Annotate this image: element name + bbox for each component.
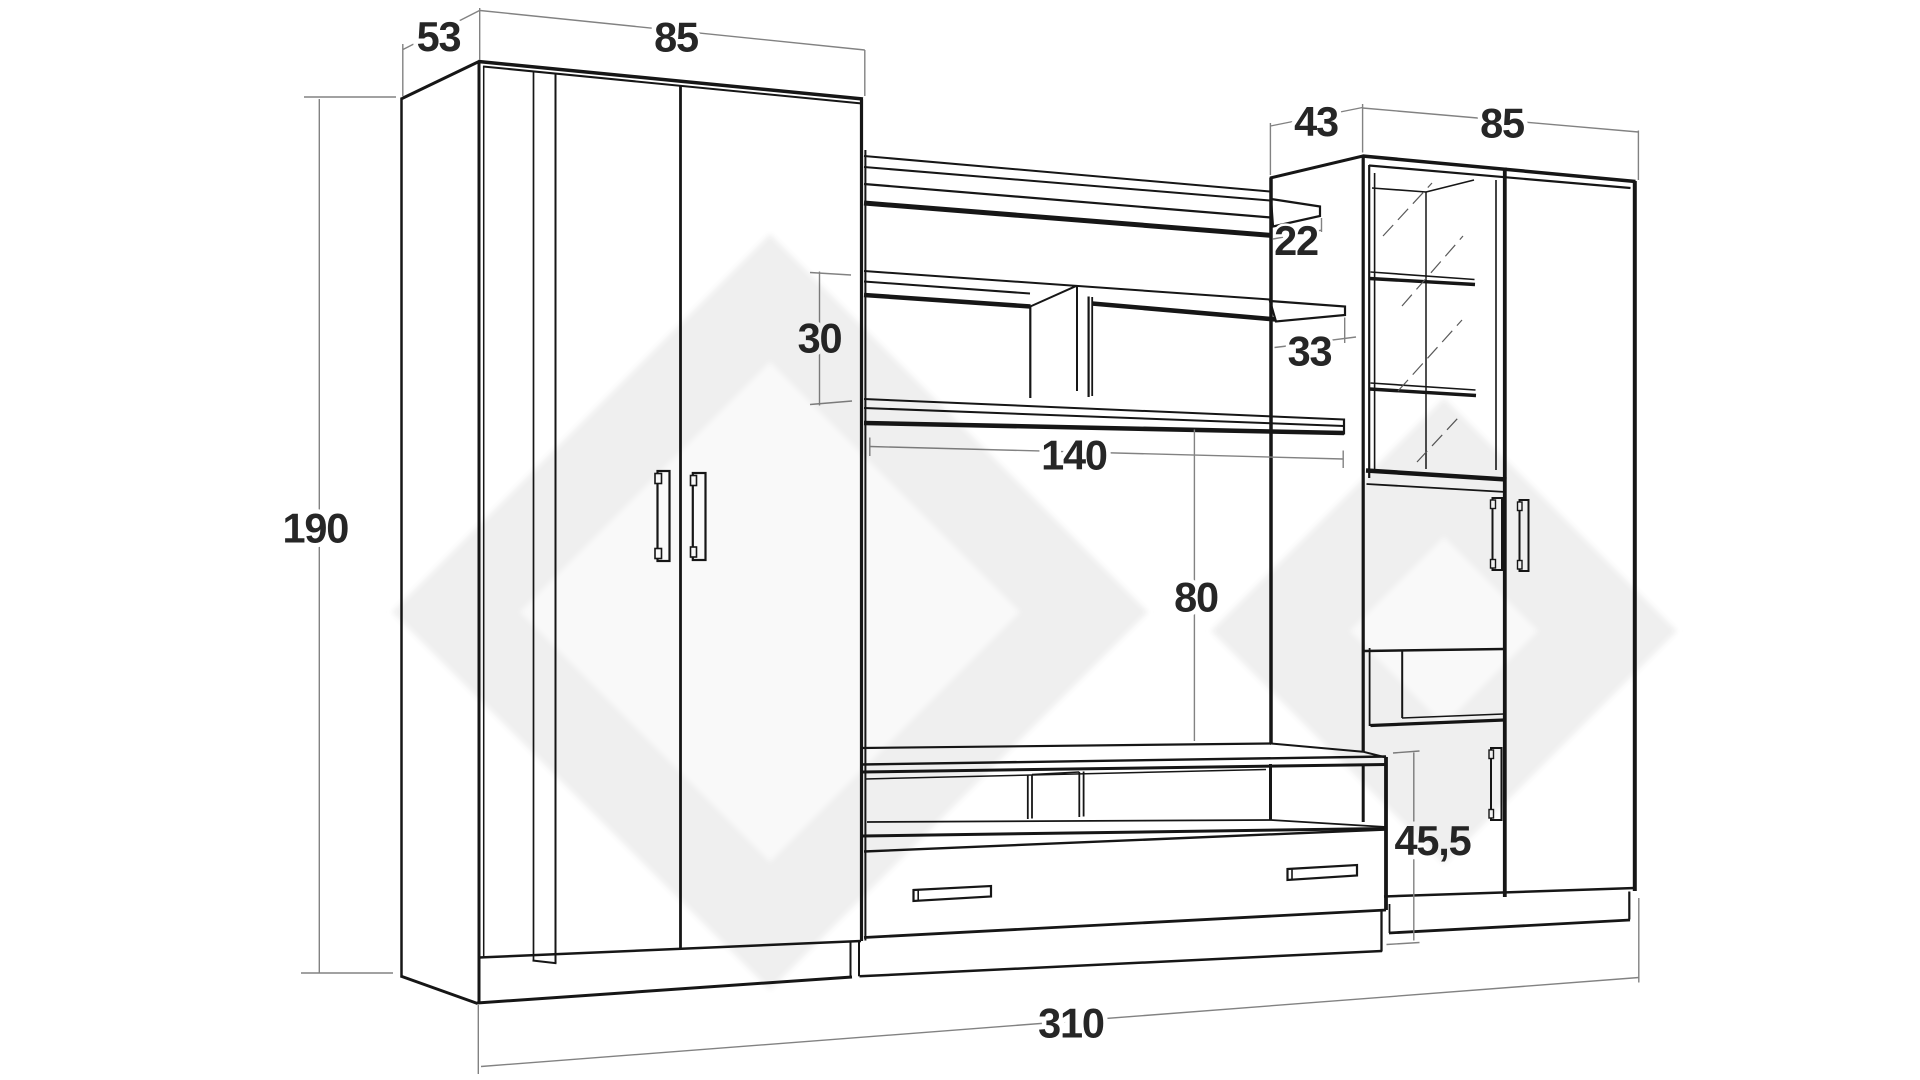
svg-text:310: 310 [1038,1000,1104,1047]
svg-text:22: 22 [1274,217,1318,264]
svg-text:190: 190 [282,505,348,552]
svg-text:85: 85 [1480,100,1524,147]
svg-text:53: 53 [417,13,461,60]
svg-text:33: 33 [1288,328,1332,375]
svg-text:43: 43 [1294,98,1338,145]
svg-text:140: 140 [1041,432,1107,479]
svg-text:80: 80 [1174,574,1218,621]
svg-text:85: 85 [654,14,698,61]
